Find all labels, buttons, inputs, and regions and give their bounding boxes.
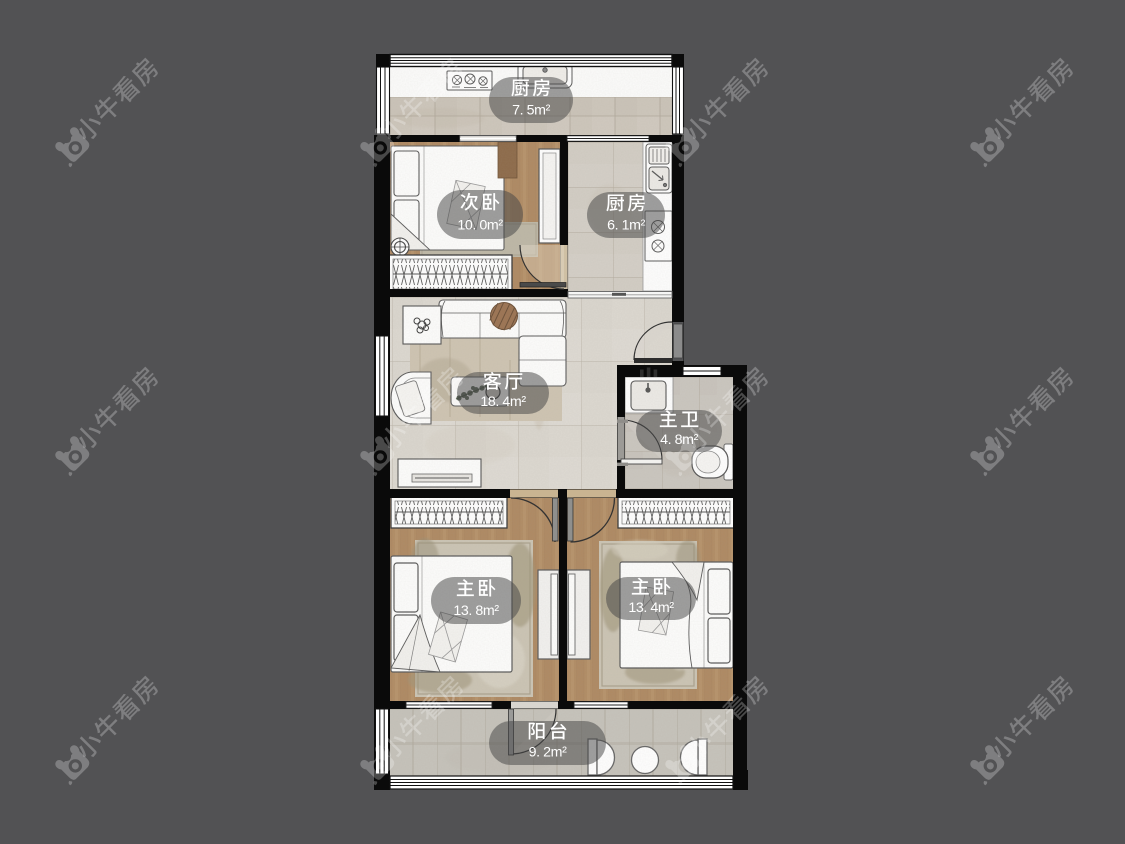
svg-text:13. 8m²: 13. 8m² — [453, 603, 499, 619]
svg-text:18. 4m²: 18. 4m² — [480, 394, 526, 410]
svg-text:10. 0m²: 10. 0m² — [457, 218, 503, 234]
svg-text:7. 5m²: 7. 5m² — [512, 102, 550, 118]
svg-text:6. 1m²: 6. 1m² — [607, 217, 645, 233]
svg-text:9. 2m²: 9. 2m² — [529, 745, 567, 761]
svg-text:13. 4m²: 13. 4m² — [628, 600, 674, 616]
